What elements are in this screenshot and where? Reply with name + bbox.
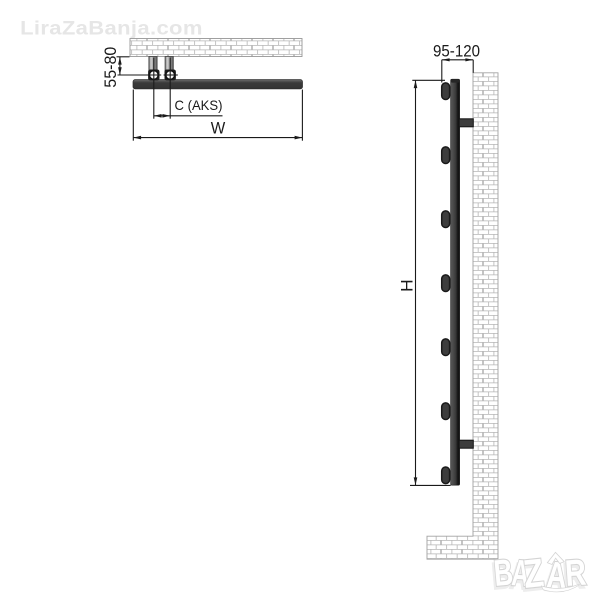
- svg-text:W: W: [211, 120, 226, 138]
- svg-text:C (AKS): C (AKS): [175, 97, 223, 113]
- svg-text:LiraZaBanja.com: LiraZaBanja.com: [20, 18, 203, 39]
- svg-text:Z: Z: [521, 551, 545, 597]
- svg-text:95-120: 95-120: [433, 42, 480, 61]
- svg-text:H: H: [398, 279, 417, 292]
- svg-text:55-80: 55-80: [102, 47, 120, 88]
